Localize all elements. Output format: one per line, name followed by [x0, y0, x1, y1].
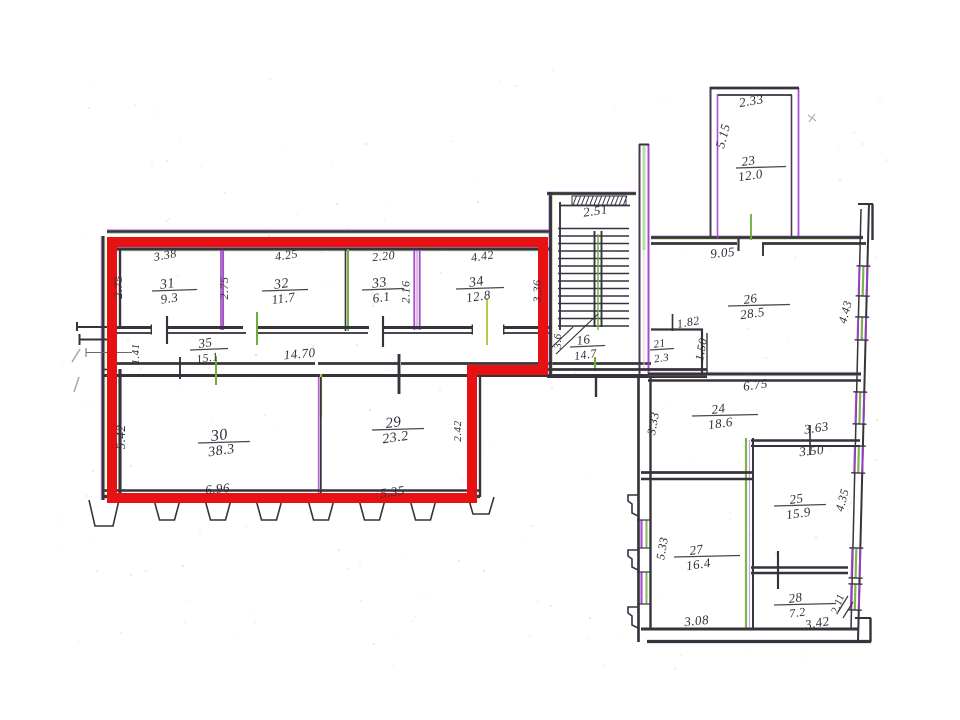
- svg-text:1.41: 1.41: [130, 343, 142, 364]
- svg-text:14.70: 14.70: [283, 345, 316, 363]
- svg-text:2.75: 2.75: [217, 277, 231, 300]
- svg-text:2.3: 2.3: [653, 352, 670, 366]
- svg-text:3.6: 3.6: [552, 333, 564, 349]
- svg-text:3.08: 3.08: [682, 612, 709, 630]
- svg-text:5.42: 5.42: [113, 425, 128, 450]
- svg-text:16: 16: [575, 331, 591, 348]
- svg-text:9.05: 9.05: [709, 244, 735, 262]
- svg-text:2.16: 2.16: [399, 281, 413, 304]
- svg-text:28: 28: [787, 589, 803, 606]
- svg-text:3.50: 3.50: [797, 442, 824, 460]
- svg-text:2.75: 2.75: [111, 276, 125, 299]
- svg-text:3.36: 3.36: [530, 280, 544, 304]
- svg-text:9.3: 9.3: [160, 289, 180, 306]
- svg-text:2.20: 2.20: [371, 248, 395, 264]
- svg-text:6.1: 6.1: [372, 288, 392, 305]
- svg-text:6.96: 6.96: [204, 480, 230, 498]
- svg-text:2.42: 2.42: [452, 420, 464, 441]
